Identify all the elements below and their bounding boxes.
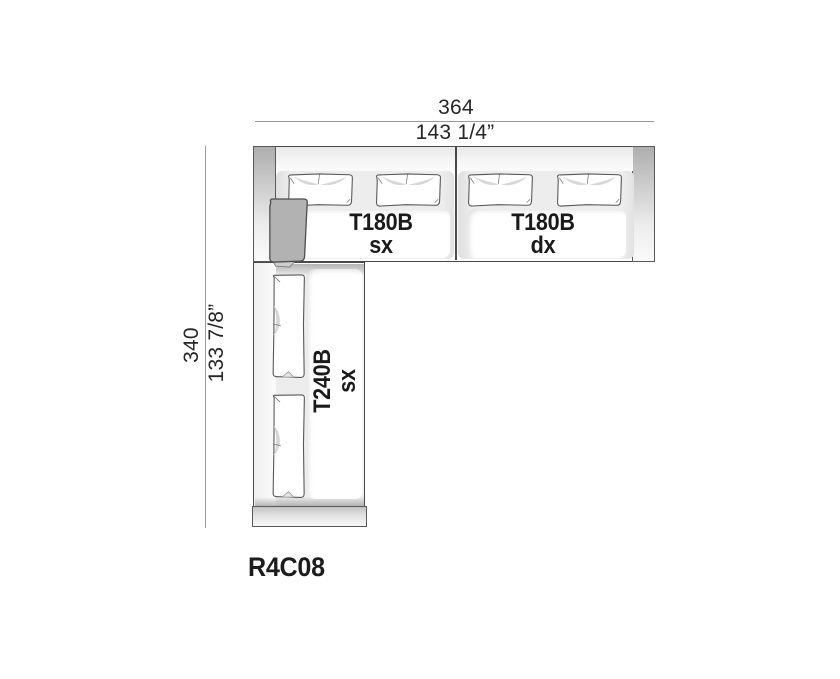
back-pillow-icon xyxy=(554,172,624,208)
module-variant: sx xyxy=(327,234,435,257)
bottom-armrest xyxy=(252,506,367,527)
module-name: T180B xyxy=(489,211,597,234)
back-pillow-icon xyxy=(269,393,307,500)
sofa-top-section: T180B sx T180B dx xyxy=(253,146,655,262)
back-pillow-icon xyxy=(269,273,307,380)
width-dimension-cm: 364 xyxy=(406,97,506,119)
module-name: T180B xyxy=(327,211,435,234)
right-armrest xyxy=(632,146,655,262)
module-label-t240b-sx: T240B sx xyxy=(310,327,360,435)
width-dimension-inches: 143 1/4” xyxy=(405,122,505,144)
back-pillow-icon xyxy=(466,172,534,208)
sofa-plan-diagram: 364 143 1/4” 340 133 7/8” xyxy=(0,0,840,679)
corner-cushion-icon xyxy=(264,195,310,269)
sofa-left-section: T240B sx xyxy=(253,262,365,527)
module-variant: sx xyxy=(335,327,360,435)
module-name: T240B xyxy=(310,327,335,435)
height-dimension-inches: 133 7/8” xyxy=(206,293,228,393)
module-divider-line xyxy=(455,147,457,260)
back-pillow-icon xyxy=(373,172,443,208)
module-variant: dx xyxy=(489,234,597,257)
product-code: R4C08 xyxy=(248,553,325,581)
height-dimension-cm: 340 xyxy=(181,315,203,375)
module-label-t180b-sx: T180B sx xyxy=(327,211,435,257)
module-label-t180b-dx: T180B dx xyxy=(489,211,597,257)
